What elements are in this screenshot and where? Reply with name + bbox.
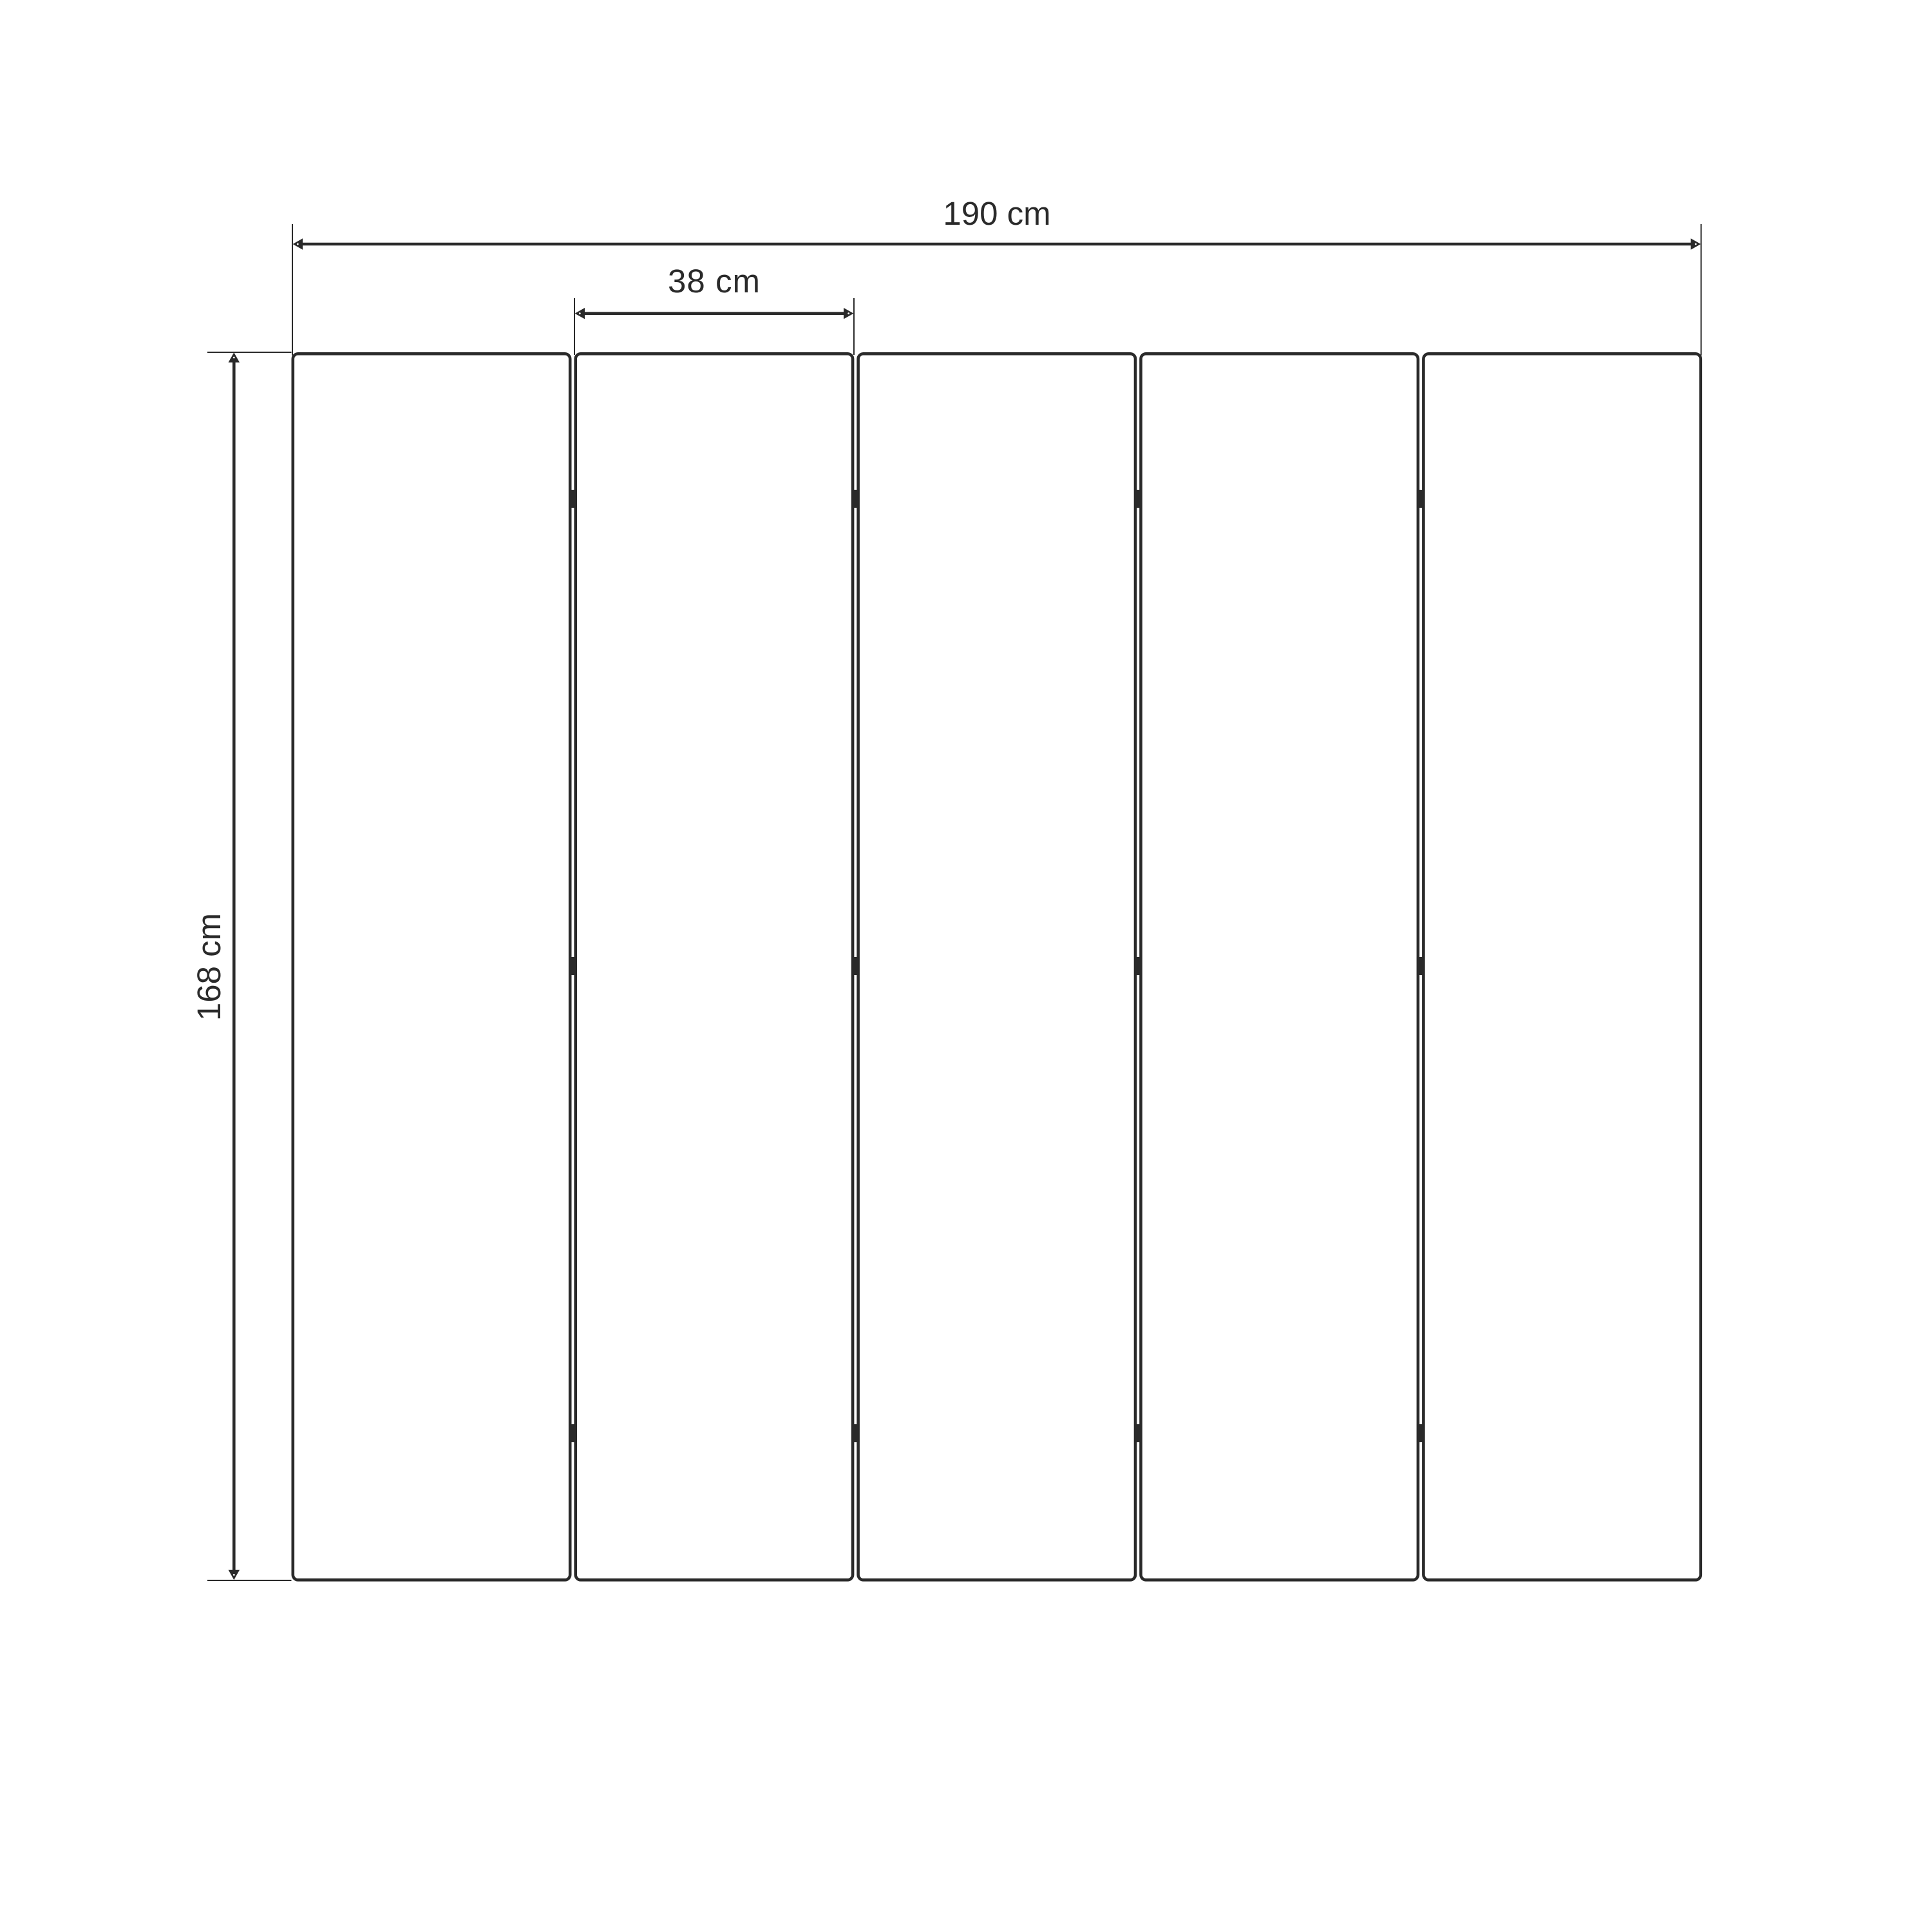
svg-text:168 cm: 168 cm — [191, 913, 227, 1021]
svg-text:38 cm: 38 cm — [668, 263, 761, 299]
svg-text:190 cm: 190 cm — [943, 195, 1050, 232]
